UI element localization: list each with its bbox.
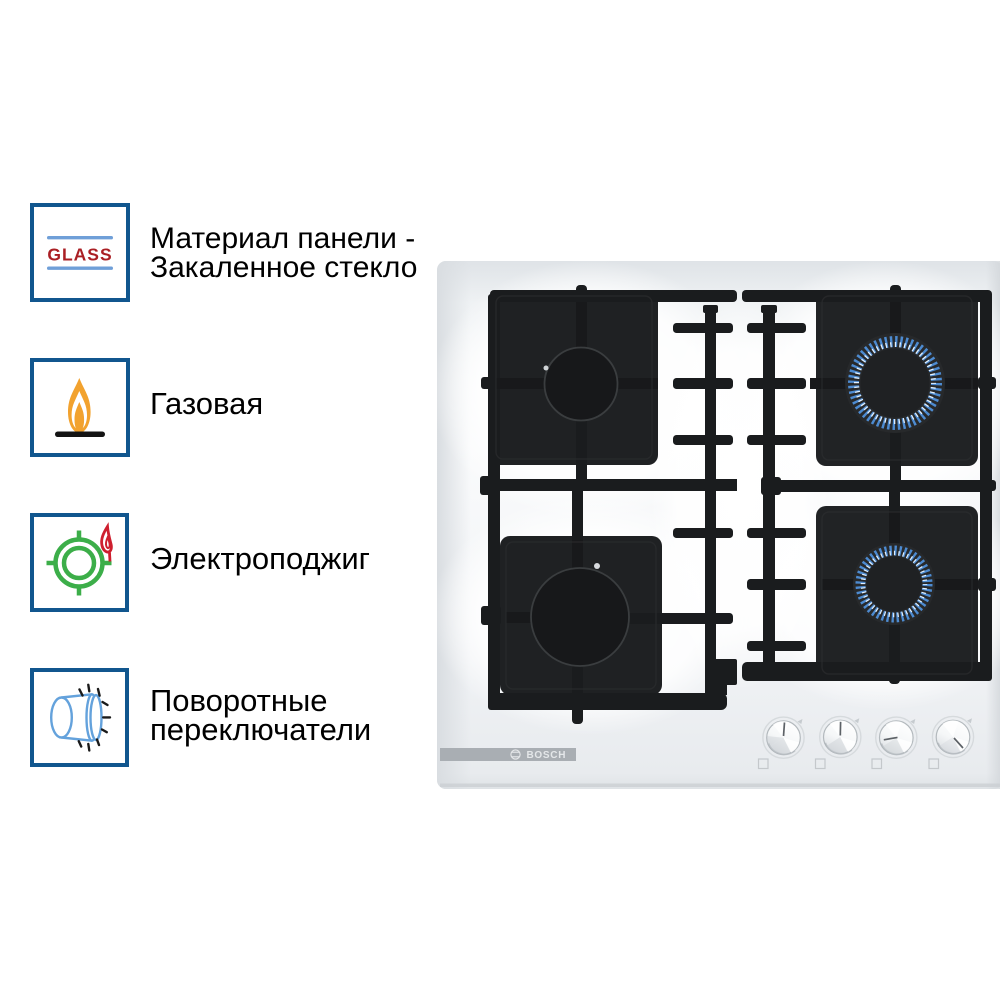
svg-text:BOSCH: BOSCH	[527, 750, 567, 761]
svg-text:GLASS: GLASS	[47, 245, 112, 265]
